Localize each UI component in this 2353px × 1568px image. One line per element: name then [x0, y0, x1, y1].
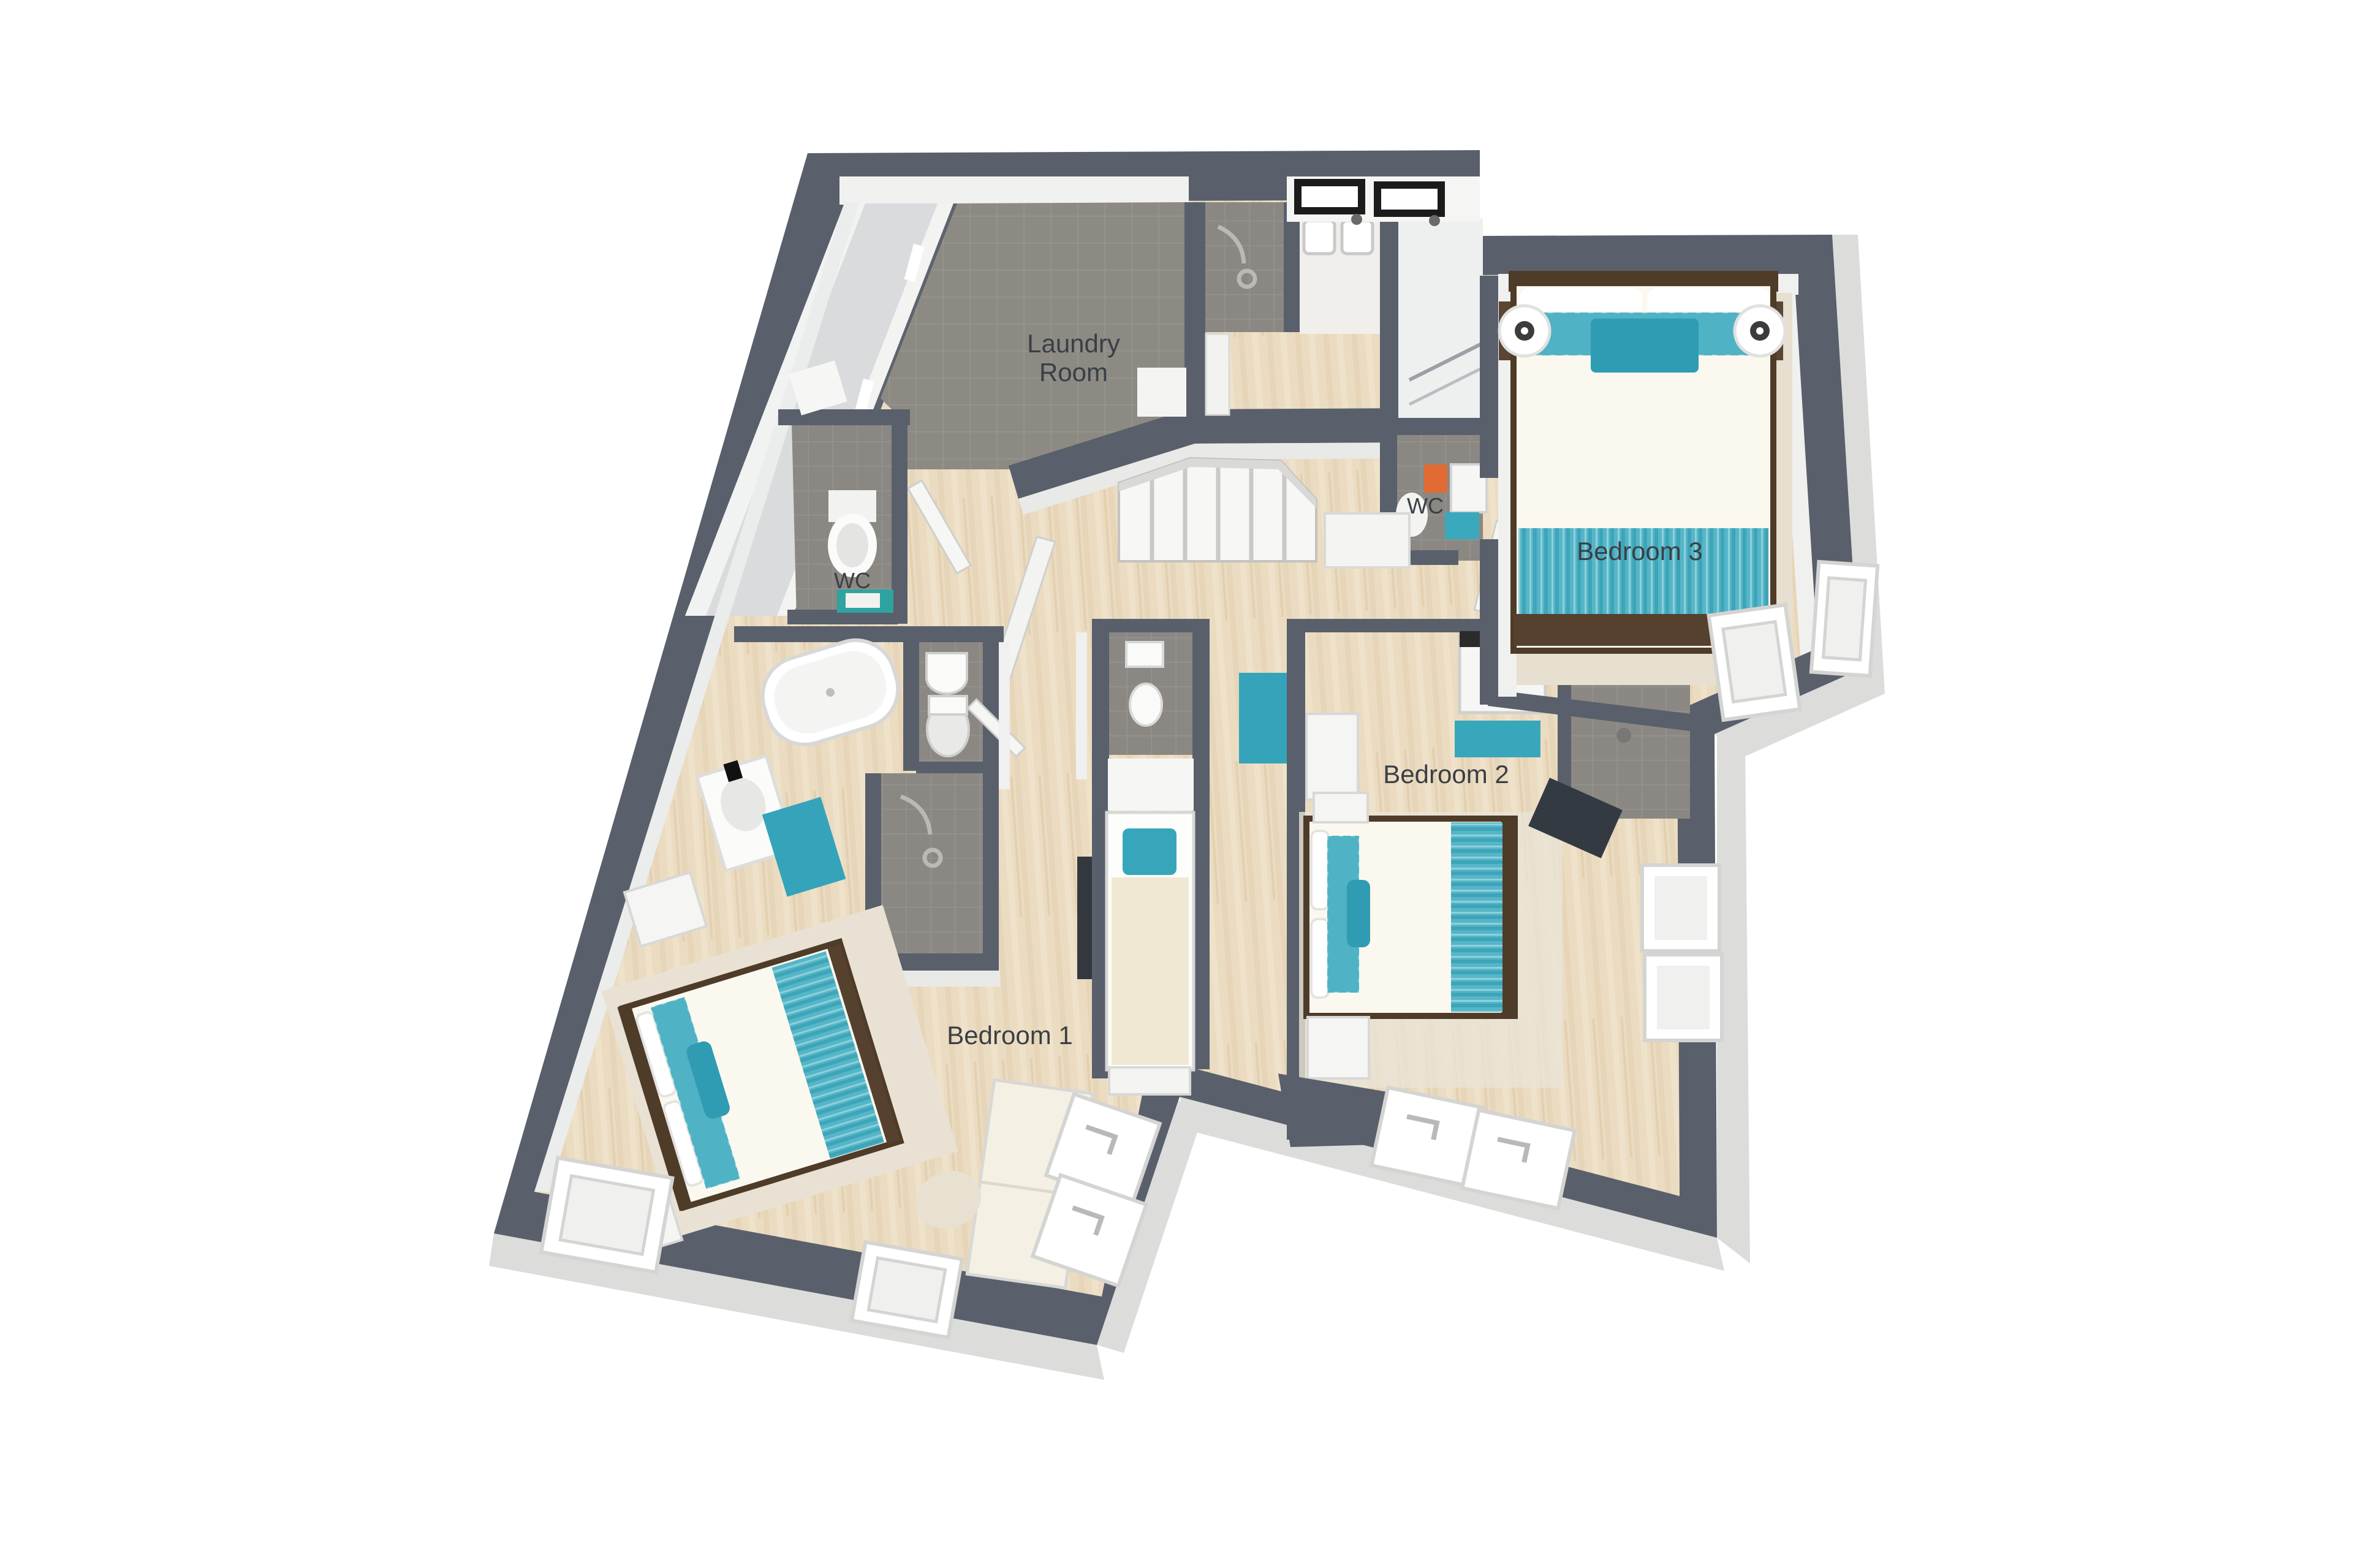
svg-text:Bedroom 2: Bedroom 2 — [1383, 760, 1509, 789]
svg-text:Laundry: Laundry — [1027, 329, 1120, 358]
svg-text:Bedroom 1: Bedroom 1 — [947, 1021, 1072, 1050]
svg-text:WC: WC — [1407, 493, 1444, 518]
svg-text:WC: WC — [834, 568, 871, 593]
svg-text:Room: Room — [1039, 358, 1108, 387]
svg-text:Bedroom 3: Bedroom 3 — [1577, 537, 1702, 566]
